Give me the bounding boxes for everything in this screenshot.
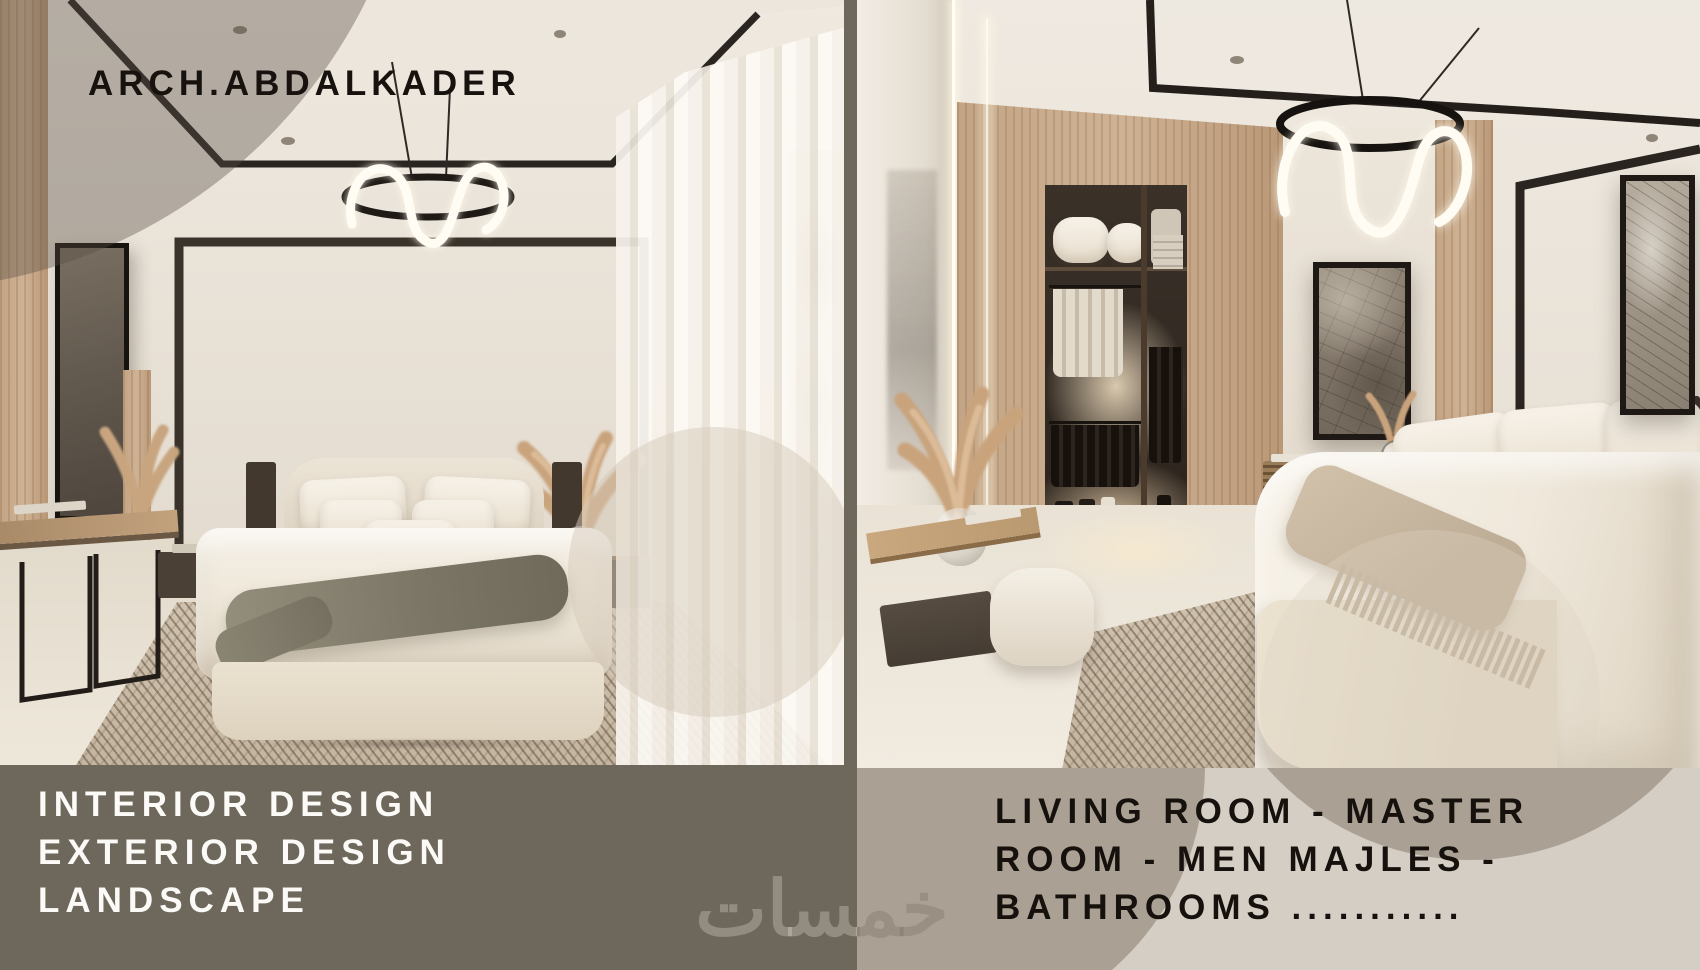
ceiling-spotlight <box>281 137 295 145</box>
console-table-legs <box>22 550 158 700</box>
bed-shadow <box>196 736 626 752</box>
caption-line: LIVING ROOM - MASTER <box>995 788 1529 836</box>
pampas-grass <box>105 430 174 517</box>
caption-line: BATHROOMS ........... <box>995 884 1465 932</box>
decorative-circle-light <box>568 427 844 717</box>
right-artwork <box>1620 175 1695 415</box>
caption-line: EXTERIOR DESIGN <box>38 829 451 877</box>
caption-line: INTERIOR DESIGN <box>38 781 439 829</box>
ottoman-pouf <box>990 568 1094 666</box>
bed-base <box>212 662 604 740</box>
caption-line: ROOM - MEN MAJLES - <box>995 836 1500 884</box>
caption-band-left: INTERIOR DESIGN EXTERIOR DESIGN LANDSCAP… <box>0 765 857 970</box>
ceiling-spotlight <box>1230 56 1244 64</box>
promo-graphic: INTERIOR DESIGN EXTERIOR DESIGN LANDSCAP… <box>0 0 1700 970</box>
architect-title: ARCH.ABDALKADER <box>88 64 521 104</box>
caption-line: LANDSCAPE <box>38 877 310 925</box>
caption-band-right: LIVING ROOM - MASTER ROOM - MEN MAJLES -… <box>857 768 1700 970</box>
ceiling-spotlight <box>554 30 566 38</box>
ceiling-spotlight <box>1646 134 1658 142</box>
